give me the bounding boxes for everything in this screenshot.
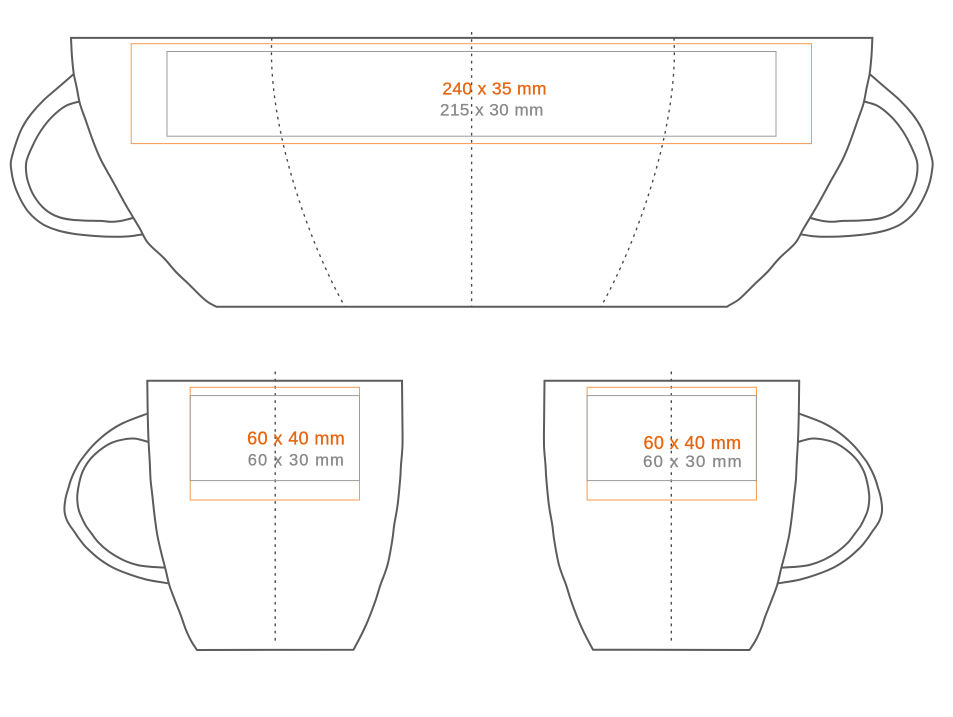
svg-text:60 x 40 mm: 60 x 40 mm: [643, 433, 741, 453]
svg-text:60 x 30 mm: 60 x 30 mm: [248, 451, 345, 469]
svg-text:60 x 40 mm: 60 x 40 mm: [247, 429, 345, 449]
svg-text:60 x 30 mm: 60 x 30 mm: [643, 452, 743, 471]
svg-text:240 x 35 mm: 240 x 35 mm: [442, 79, 546, 99]
svg-text:215 x 30 mm: 215 x 30 mm: [440, 101, 544, 120]
